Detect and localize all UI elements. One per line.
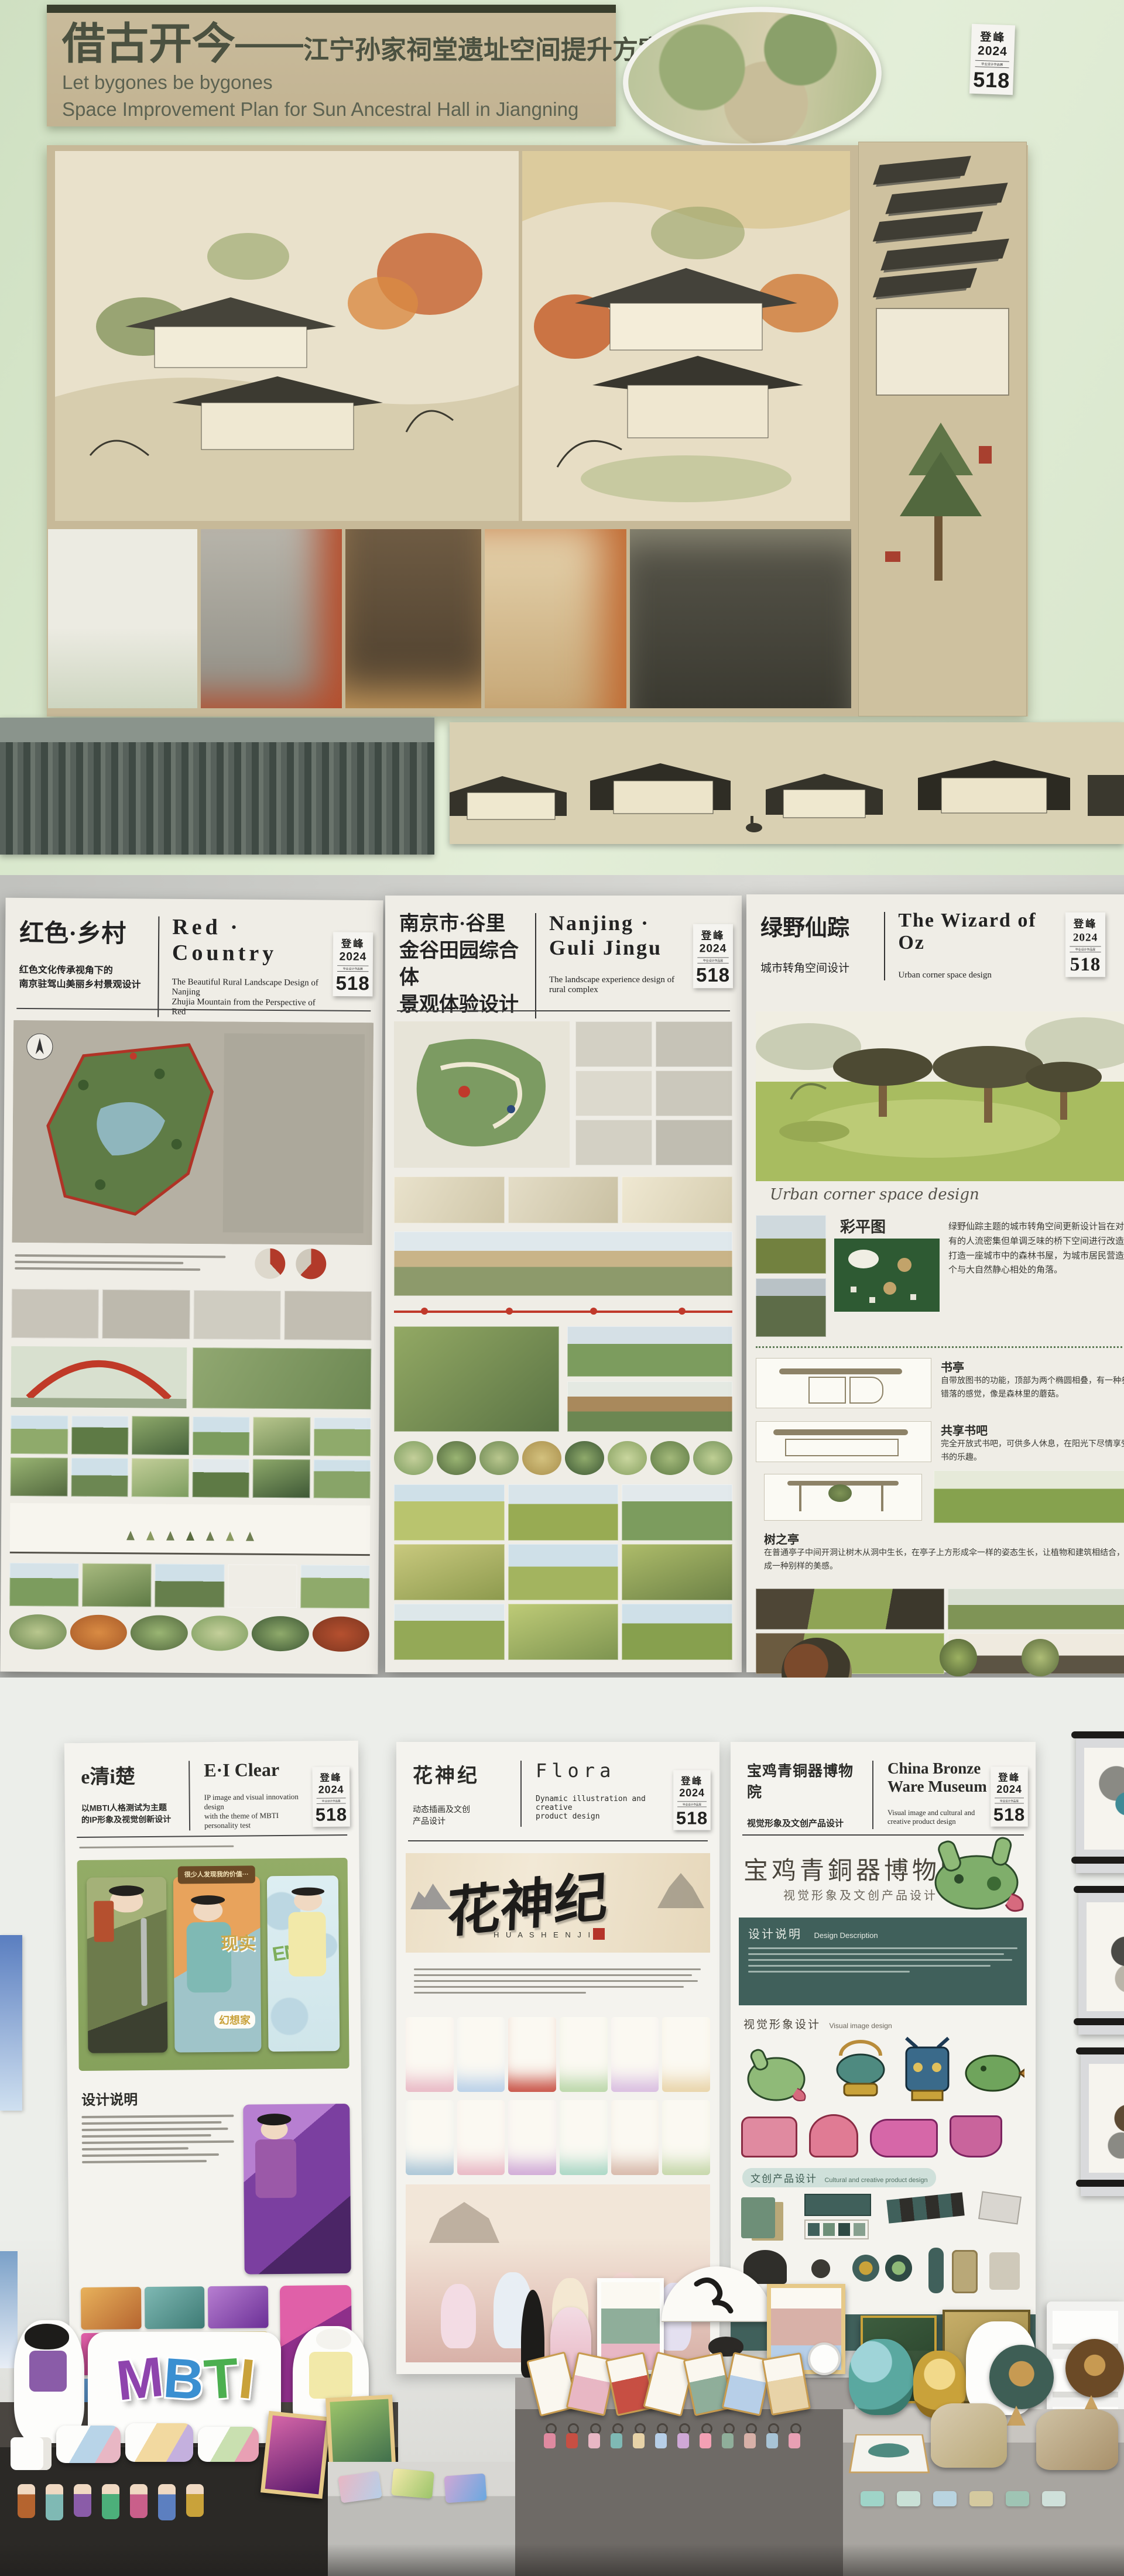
teapot-face-standee [849, 2339, 913, 2415]
photo [313, 1459, 371, 1498]
plant-circle [437, 1441, 476, 1475]
photo [622, 1484, 732, 1541]
timeline-node [421, 1308, 428, 1315]
tree-symbol [205, 1531, 214, 1541]
axonometric-diagram-column [858, 142, 1027, 716]
rice-field-photos [394, 1484, 732, 1660]
goddess-card [611, 2017, 659, 2092]
bronze-title-en: China Bronze Ware Museum [887, 1759, 990, 1796]
diagram [575, 1021, 652, 1067]
model-box-diagram [876, 308, 1009, 396]
main-poster-board [47, 145, 1028, 716]
art-pillow [56, 2426, 121, 2463]
site-photo-1 [756, 1215, 826, 1274]
keychain [631, 2423, 646, 2450]
bronze-header: 宝鸡青铜器博物院 视觉形象及文创产品设计 China Bronze Ware M… [731, 1742, 1036, 1834]
photo-strip-2 [9, 1563, 370, 1608]
ei-title-en: E·I Clear [204, 1759, 309, 1782]
axon-piece [873, 268, 977, 298]
mbti-letter-b: B [162, 2346, 204, 2413]
exhibition-badge: 登峰 2024 毕业设计作品展 518 [969, 24, 1015, 95]
guli-masterplan [394, 1326, 559, 1432]
plan-section-title: 彩平图 [840, 1215, 886, 1237]
thumb-brick-red-tree [201, 529, 342, 708]
phone-case [952, 2250, 978, 2293]
red-bridge-render [11, 1346, 187, 1408]
photo [252, 1459, 310, 1498]
ink-render-right-art [522, 151, 850, 521]
site-plan-art [12, 1020, 374, 1245]
text-line [414, 1986, 684, 1988]
card-strip [886, 2192, 964, 2223]
goddess-card [406, 2100, 454, 2175]
analysis-map [11, 1289, 99, 1339]
flora-sub-zh1: 动态插画及文创 [413, 1803, 506, 1815]
figure-shirt [255, 2139, 297, 2198]
goddess-card [508, 2100, 556, 2175]
photo [155, 1564, 225, 1608]
photo [394, 1484, 505, 1541]
guli-title-zh1: 南京市·谷里 [399, 911, 522, 938]
goddess-card [406, 2017, 454, 2092]
badge-title: 登峰 [974, 28, 1013, 45]
flat-sticker [1006, 2491, 1029, 2506]
goddess-card [457, 2100, 505, 2175]
sketch-roof [773, 1429, 908, 1435]
red-country-sub-zh1: 红色文化传承视角下的 [19, 962, 145, 977]
panorama-art [450, 722, 1124, 844]
bronze-mascot-dragon [924, 1830, 1029, 1918]
wizard-sub-en: Urban corner space design [898, 970, 1059, 980]
kiosk-title: 书亭 [941, 1358, 964, 1375]
mini-card [145, 2286, 205, 2329]
mini-standee [102, 2484, 119, 2519]
flat-sticker [861, 2491, 884, 2506]
bottle [928, 2248, 944, 2293]
axon-piece [885, 183, 1008, 214]
plant-circle [70, 1615, 127, 1651]
sketch-shelf [808, 1377, 846, 1404]
keychain [765, 2423, 780, 2450]
tree-symbol [146, 1531, 154, 1540]
plush-shirt [29, 2351, 67, 2392]
red-country-sub-en2: Zhujia Mountain from the Perspective of … [172, 997, 330, 1018]
keychain [698, 2423, 713, 2450]
photo [10, 1457, 67, 1497]
keychain [653, 2423, 669, 2450]
palette-row [9, 1614, 369, 1652]
purple-artwork [243, 2104, 351, 2275]
photo [508, 1484, 619, 1541]
red-timeline [394, 1305, 732, 1318]
red-bridge-art [11, 1346, 187, 1408]
axon-piece [880, 239, 1009, 271]
ink-render-left [55, 151, 519, 521]
photo [300, 1565, 370, 1608]
plant-circle [479, 1441, 519, 1475]
pin [823, 2223, 835, 2236]
photo [394, 1604, 505, 1660]
text-line [414, 1968, 701, 1970]
red-country-title-en: Red · Country [172, 914, 331, 967]
bronze-sub-zh: 视觉形象及文创产品设计 [747, 1817, 858, 1829]
tree-symbol [166, 1531, 174, 1541]
diagram [575, 1120, 652, 1165]
photo [394, 1544, 505, 1600]
ip-card-enfp: ENFP [267, 1875, 340, 2052]
bronze-title-zh: 宝鸡青铜器博物院 [747, 1759, 858, 1802]
flora-sub-zh2: 产品设计 [413, 1815, 506, 1827]
mini-standee [18, 2484, 35, 2518]
mbti-ip-banner: 很少人发现我的价值··· 现实 幻想家 ENFP [77, 1858, 349, 2071]
hanging-scroll-3 [1081, 2050, 1124, 2196]
pin [854, 2223, 865, 2236]
kraft-paper-fan [931, 2403, 1007, 2468]
mini-standee [46, 2484, 63, 2520]
floor-shadow [0, 2544, 1124, 2576]
ei-sub-zh1: 以MBTI人格测试为主题 [81, 1802, 175, 1814]
axon-strip [394, 1176, 732, 1223]
tote-bags [741, 2197, 775, 2238]
text-line [82, 2141, 234, 2144]
ink-panorama-scroll [450, 722, 1124, 844]
pink-artifact [809, 2114, 858, 2157]
flat-sticker [933, 2491, 957, 2506]
ei-sub-en2: with the theme of MBTI personality test [204, 1811, 310, 1831]
bronze-s3-zh: 文创产品设计 [751, 2173, 817, 2184]
analysis-map [284, 1291, 372, 1340]
pie-chart-red [255, 1248, 285, 1279]
ei-title-zh: e清i楚 [81, 1760, 174, 1789]
text-line [748, 1971, 910, 1973]
sword [140, 1918, 147, 2006]
guli-title-zh2: 金谷田园综合体 [399, 938, 522, 992]
bronze-s2-zh: 视觉形象设计 [743, 2019, 821, 2031]
flat-sticker [1042, 2491, 1065, 2506]
red-country-header: 红色·乡村 红色文化传承视角下的 南京驻驾山美丽乡村景观设计 Red · Cou… [5, 898, 383, 1024]
flat-keychain-row [861, 2491, 1065, 2506]
plush-jacket [309, 2352, 352, 2399]
guli-site-map-art [394, 1021, 570, 1168]
goddess-card [611, 2100, 659, 2175]
guli-title-zh3: 景观体验设计 [399, 992, 522, 1018]
mug [11, 2437, 52, 2470]
mini-standee-row [18, 2484, 204, 2520]
ip-card-dreamer: 很少人发现我的价值··· 现实 幻想家 [173, 1876, 262, 2052]
timeline-node [678, 1308, 686, 1315]
keychain-row [539, 2423, 806, 2453]
text-line [748, 1959, 1012, 1961]
wizard-main-render [756, 1011, 1124, 1181]
plant-circle [565, 1441, 604, 1475]
plant-circle [9, 1614, 67, 1650]
guli-render-2 [567, 1381, 732, 1432]
text-line [748, 1965, 991, 1967]
accordion-illustration-card [533, 2355, 837, 2414]
wizard-header: 绿野仙踪 城市转角空间设计 The Wizard of Oz Urban cor… [746, 894, 1124, 986]
text-line [82, 2153, 219, 2157]
print-art [265, 2416, 327, 2495]
plaque-title-zh: 借古开今——江宁孙家祠堂遗址空间提升方案 [62, 21, 601, 67]
diagram [575, 1071, 652, 1116]
left-edge-artwork [0, 1935, 22, 2111]
mbti-letter-i: I [236, 2347, 256, 2412]
photo [131, 1458, 189, 1497]
photo [622, 1604, 732, 1660]
text-line [15, 1254, 225, 1258]
tree-pavilion-render [934, 1470, 1124, 1523]
photo [253, 1417, 310, 1456]
thumb-wood-pavilion [345, 529, 481, 708]
wizard-script-caption: Urban corner space design [770, 1186, 979, 1203]
round-fan-display [1065, 2339, 1124, 2397]
wood-card-stand [849, 2434, 930, 2473]
guli-render-1 [567, 1326, 732, 1377]
photo [132, 1416, 189, 1455]
sketch-body [849, 1377, 883, 1404]
scroll-rod [1071, 1857, 1124, 1864]
text-line [15, 1261, 183, 1264]
pink-artifact [741, 2117, 797, 2157]
scroll-painting [1087, 1902, 1124, 2011]
plaque-title-en1: Let bygones be bygones [62, 71, 601, 94]
exhibition-photo: 借古开今——江宁孙家祠堂遗址空间提升方案 Let bygones be bygo… [0, 0, 1124, 2576]
plush-hair [25, 2324, 69, 2349]
keychain [787, 2423, 802, 2450]
color-plan [834, 1239, 940, 1312]
bronze-calligraphy-sub: 视觉形象及文创产品设计 [783, 1886, 938, 1903]
keychain [742, 2423, 758, 2450]
exhibition-badge: 登峰 2024 毕业设计作品展 518 [991, 1767, 1028, 1826]
fish-artwork [868, 2443, 910, 2457]
kraft-paper-fan [1036, 2409, 1118, 2470]
goddess-card [560, 2100, 608, 2175]
red-label [94, 1901, 114, 1942]
figure-hair [257, 2114, 291, 2126]
photo [192, 1416, 249, 1456]
flora-logo-banner: 花神纪 H U A S H E N J I [406, 1853, 710, 1953]
round-fan-product [885, 2255, 912, 2282]
site-photo-2 [756, 1278, 826, 1337]
bronze-artifact-row [741, 2032, 1024, 2108]
pin [808, 2223, 820, 2236]
accordion-panel [762, 2352, 811, 2416]
photo [9, 1563, 79, 1607]
keychain [587, 2423, 602, 2450]
header-divider [884, 912, 885, 980]
card-speech-banner: 很少人发现我的价值··· [178, 1865, 255, 1884]
photo [71, 1458, 128, 1497]
guli-title-en: Nanjing · Guli Jingu [549, 911, 689, 960]
dotted-divider [756, 1346, 1124, 1348]
wizard-title-zh: 绿野仙踪 [760, 910, 871, 942]
photo [508, 1544, 619, 1600]
art-pillow [125, 2423, 193, 2462]
bronze-s1-en: Design Description [814, 1931, 878, 1940]
glass-building-photo [0, 718, 434, 855]
badge-subtitle: 毕业设计作品展 [975, 60, 1009, 68]
kiosk-text: 自带放图书的功能，顶部为两个椭圆相叠，有一种参差错落的感觉，像是森林里的蘑菇。 [941, 1374, 1124, 1401]
product-design-heading: 文创产品设计 Cultural and creative product des… [742, 2168, 936, 2187]
flora-title-zh: 花神纪 [413, 1759, 506, 1788]
bronze-s1-zh: 设计说明 [748, 1928, 802, 1941]
round-fan-product [852, 2255, 879, 2282]
flat-card [338, 2471, 382, 2503]
exhibition-badge: 登峰 2024 毕业设计作品展 518 [1065, 913, 1105, 977]
pink-artifact [870, 2119, 938, 2157]
diagram [656, 1071, 732, 1116]
round-fan-display [989, 2345, 1054, 2409]
text-line [748, 1953, 1004, 1955]
tree-symbol [186, 1531, 194, 1541]
diagram [656, 1120, 732, 1165]
timeline-node [590, 1308, 597, 1315]
keychain [542, 2423, 557, 2450]
text-line [414, 1992, 586, 1994]
text-line [82, 2160, 207, 2163]
photo [508, 1604, 619, 1660]
plant-circle [191, 1615, 248, 1651]
title-plaque: 借古开今——江宁孙家祠堂遗址空间提升方案 Let bygones be bygo… [47, 5, 616, 126]
plant-circle [312, 1616, 369, 1652]
mbti-letter-m: M [113, 2345, 164, 2413]
mini-standee [74, 2484, 91, 2517]
bronze-s2-en: Visual image design [829, 2022, 892, 2030]
photo-strip-1 [10, 1415, 371, 1498]
guli-diagram-grid [575, 1021, 732, 1165]
wall-middle-gray: 红色·乡村 红色文化传承视角下的 南京驻驾山美丽乡村景观设计 Red · Cou… [0, 875, 1124, 1678]
mini-card [81, 2287, 141, 2330]
tree-pavilion-sketch [764, 1474, 922, 1521]
flora-logo-latin: H U A S H E N J I [494, 1930, 592, 1939]
ip-card-warrior [87, 1877, 168, 2053]
poster-flora: 花神纪 动态插画及文创 产品设计 Flora Dynamic illustrat… [396, 1742, 719, 2374]
design-description-band: 设计说明 Design Description [739, 1918, 1027, 2005]
text-line [82, 2147, 189, 2150]
red-country-sub-zh2: 南京驻驾山美丽乡村景观设计 [19, 976, 145, 991]
scroll-rod [1074, 2018, 1124, 2025]
masterplan-green [193, 1347, 372, 1409]
street-render [394, 1232, 732, 1296]
ei-sub-en1: IP image and visual innovation design [204, 1792, 310, 1812]
badge-number: 518 [972, 69, 1011, 91]
tree-symbol [126, 1531, 134, 1540]
guli-sub-en1: The landscape experience design of [549, 975, 689, 985]
figure-hair [191, 1895, 225, 1905]
render [756, 1589, 944, 1630]
sketch-post [881, 1486, 883, 1511]
goddess-card-row-2 [406, 2100, 710, 2175]
bronze-sub-en: Visual image and cultural and creative p… [887, 1809, 990, 1826]
diagram [656, 1021, 732, 1067]
red-country-sub-en1: The Beautiful Rural Landscape Design of … [172, 977, 330, 999]
wall-bottom-white: e清i楚 以MBTI人格测试为主题 的IP形象及视觉创新设计 E·I Clear… [0, 1678, 1124, 2576]
goddess-card-row-1 [406, 2017, 710, 2092]
axon-piece [873, 211, 983, 242]
color-plan-art [834, 1239, 940, 1312]
banner-pavilion-left [410, 1884, 451, 1909]
photo [11, 1415, 68, 1455]
scroll-painting [1084, 1748, 1124, 1850]
axon-tile [394, 1176, 505, 1223]
flat-sticker [897, 2491, 920, 2506]
mini-card [208, 2286, 268, 2328]
plush-character-left [14, 2320, 84, 2443]
fan-stand [1007, 2406, 1026, 2426]
plant-circle [131, 1615, 188, 1651]
guli-site-map [394, 1021, 570, 1168]
plaque-title-en2: Space Improvement Plan for Sun Ancestral… [62, 98, 601, 121]
tree-symbol [225, 1531, 234, 1541]
text-line [414, 1974, 692, 1976]
wall-top-green: 借古开今——江宁孙家祠堂遗址空间提升方案 Let bygones be bygo… [0, 0, 1124, 875]
guli-header: 南京市·谷里 金谷田园综合体 景观体验设计 Nanjing · Guli Jin… [385, 896, 742, 1024]
poster-red-country: 红色·乡村 红色文化传承视角下的 南京驻驾山美丽乡村景观设计 Red · Cou… [0, 898, 383, 1674]
scroll-rod [1076, 2180, 1124, 2187]
text-line [748, 1947, 1017, 1949]
photo [71, 1416, 128, 1455]
hanging-scroll-2 [1078, 1888, 1124, 2035]
scroll-rod [1074, 1886, 1124, 1893]
circle-render [940, 1639, 977, 1676]
photo [192, 1459, 249, 1498]
header-rule [397, 1010, 730, 1011]
washi-tape-strip [804, 2194, 871, 2216]
title-sub: 江宁孙家祠堂遗址空间提升方案 [303, 36, 664, 64]
mini-standee [186, 2484, 204, 2517]
framed-print-purple [261, 2411, 331, 2499]
ei-design-note-title: 设计说明 [81, 2088, 138, 2109]
scroll-rod [1076, 2047, 1124, 2054]
card-word-dreamer: 幻想家 [214, 2011, 255, 2029]
pavilion-silhouette [429, 2202, 499, 2243]
pink-artifact-row [741, 2117, 1024, 2157]
photo [228, 1564, 297, 1608]
axon-tile [508, 1176, 619, 1223]
wizard-title-en: The Wizard of Oz [898, 910, 1059, 954]
pink-artifact [950, 2115, 1002, 2157]
sketch-roof [779, 1368, 902, 1374]
exhibition-badge: 登峰 2024 毕业设计作品展 518 [312, 1767, 350, 1827]
card-word-reality: 现实 [221, 1929, 256, 1955]
analysis-text-block [15, 1250, 225, 1275]
header-divider [535, 913, 536, 1018]
header-divider [520, 1761, 522, 1827]
mini-standee [130, 2484, 148, 2518]
text-line [81, 2115, 234, 2118]
oval-aerial-render [619, 1, 885, 156]
circle-render [1022, 1639, 1059, 1676]
hanging-scroll-1 [1076, 1734, 1124, 1873]
title-dash: —— [235, 25, 303, 63]
guli-sub-en2: rural complex [549, 985, 689, 995]
ink-render-right [522, 151, 850, 521]
sketch-post [799, 1486, 801, 1511]
scroll-painting [1089, 2064, 1124, 2173]
text-line [79, 1846, 234, 1848]
render-thumbnail-row [48, 529, 851, 708]
keychain [609, 2423, 624, 2450]
scroll-rod [1071, 1731, 1124, 1738]
render [948, 1589, 1124, 1630]
goddess-card [508, 2017, 556, 2092]
flora-sub-en1: Dynamic illustration and creative [536, 1795, 670, 1812]
notebook [989, 2252, 1020, 2290]
plant-circle [608, 1441, 647, 1475]
thumb-dark-pavilion-wide [630, 529, 851, 708]
badge-pins [978, 2191, 1022, 2225]
photo [313, 1417, 371, 1456]
